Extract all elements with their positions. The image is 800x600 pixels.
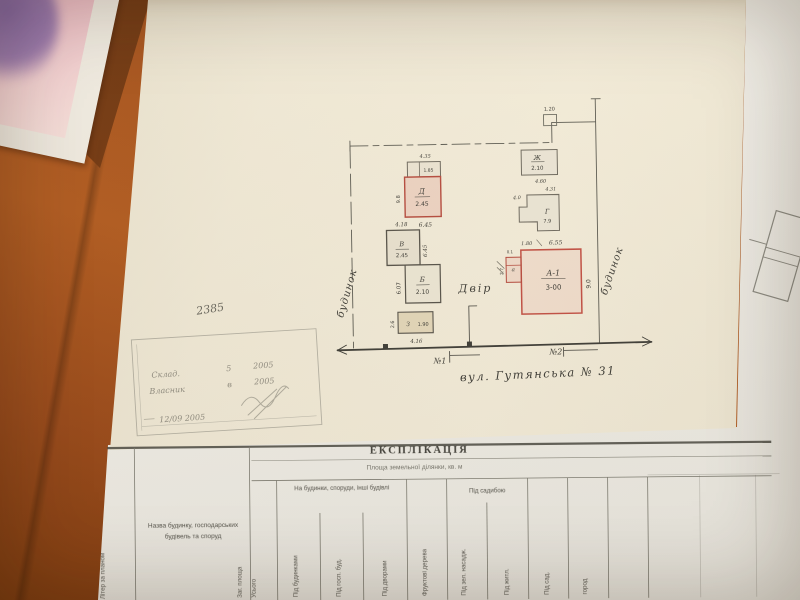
- col-green-plantings: Під зел. насадж.: [460, 503, 495, 595]
- photo-scene: 1.20 1.85 4.35 Д: [0, 0, 800, 600]
- explication-table: ЕКСПЛІКАЦІЯ Площа земельної ділянки, кв.…: [0, 0, 800, 600]
- table-subtitle: Площа земельної ділянки, кв. м: [269, 463, 559, 473]
- col-fruit-trees: Фруктові дерева: [421, 506, 455, 596]
- table-title: ЕКСПЛІКАЦІЯ: [309, 444, 529, 457]
- col-under-housing: Під житл.: [503, 510, 537, 595]
- col-letter-plan: Літер за планом: [99, 499, 118, 599]
- col-under-garden: Під сад.: [543, 510, 577, 595]
- group-header-yard: Під садибою: [449, 487, 526, 495]
- col-under-yards: Під дворами: [381, 484, 415, 596]
- col-usyogo: Усього: [250, 517, 287, 597]
- col-under-outbuildings: Під госп. буд.: [335, 515, 372, 597]
- col-vegetable-garden: город: [581, 504, 615, 594]
- col-under-buildings: Під будинками: [292, 515, 329, 597]
- col-building-name: Назва будинку, господарських будівель та…: [139, 494, 248, 569]
